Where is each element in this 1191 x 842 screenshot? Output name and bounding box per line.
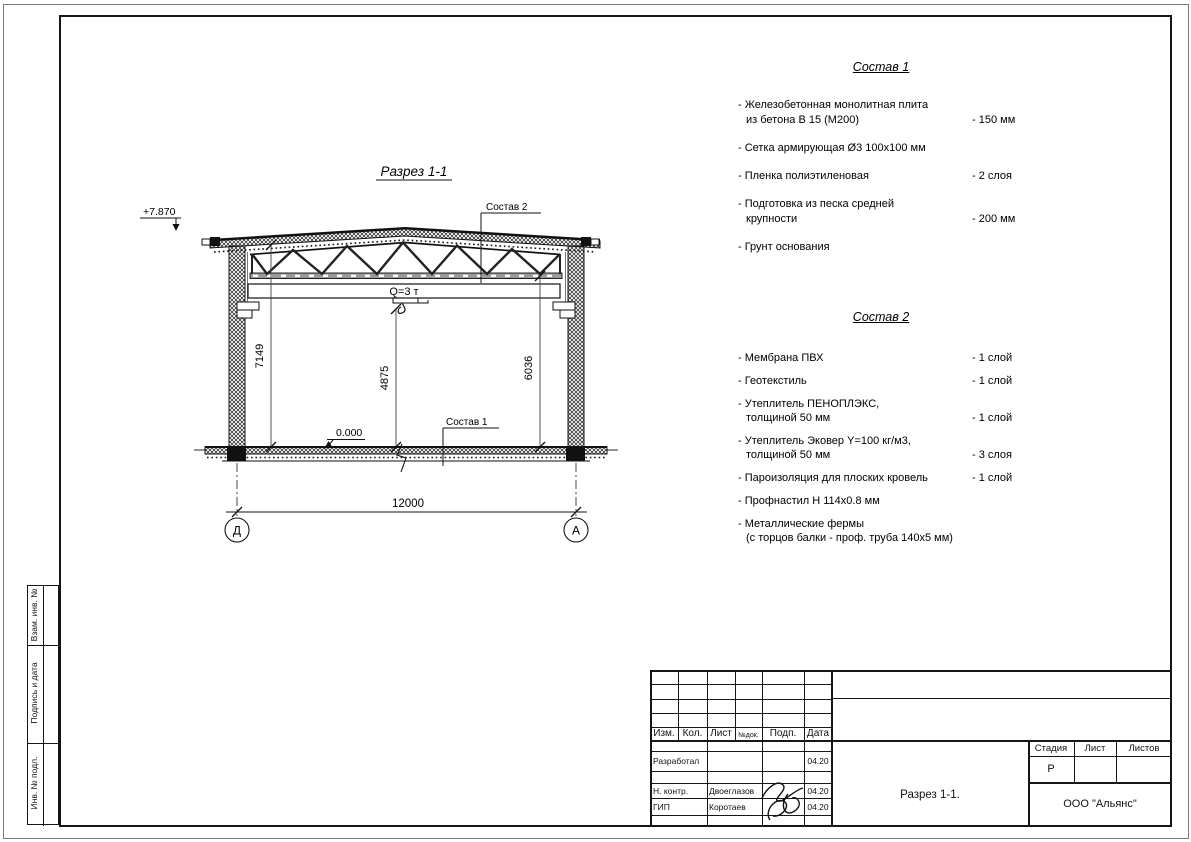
tb-sheet-label: Лист — [1074, 742, 1116, 756]
title-block: Изм. Кол. Лист №док. Подп. Дата Разработ… — [650, 670, 1172, 827]
drawing-sheet: Разрез 1-1 +7.870 — [0, 0, 1191, 842]
item-text: - Утеплитель Эковер Y=100 кг/м3, — [738, 434, 972, 448]
callout-floor-label: Состав 1 — [446, 417, 488, 428]
item-text: - Геотекстиль — [738, 374, 972, 388]
tb-col-podp: Подп. — [762, 727, 804, 741]
dim-center-value: 4875 — [379, 366, 391, 390]
item-text: - Пароизоляция для плоских кровель — [738, 471, 972, 485]
spec2-item: - Мембрана ПВХ - 1 слой — [738, 351, 1172, 365]
tb-company: ООО "Альянс" — [1028, 797, 1172, 811]
elevation-mark-zero: 0.000 — [324, 427, 365, 449]
stamp-label-vzam: Взам. инв. № — [26, 586, 42, 644]
crane-beam: Q=3 т — [248, 284, 560, 313]
dim-span-value: 12000 — [392, 498, 424, 510]
axis-right-label: А — [572, 524, 580, 538]
tb-role-gip: ГИП — [653, 800, 670, 814]
line — [650, 713, 832, 714]
tb-col-izm: Изм. — [650, 727, 678, 741]
spec-sostav-2: Состав 2 - Мембрана ПВХ - 1 слой - Геоте… — [738, 309, 1172, 554]
item-text2: (с торцов балки - проф. труба 140х5 мм) — [738, 531, 972, 545]
item-text: - Железобетонная монолитная плита — [738, 98, 972, 113]
wall-right — [568, 246, 584, 448]
roof — [202, 228, 600, 255]
line — [650, 670, 1172, 672]
item-value: - 1 слой — [972, 471, 1012, 485]
signature-icon — [758, 774, 810, 824]
dimension-4875: 4875 — [379, 304, 401, 452]
spec2-item: - Геотекстиль - 1 слой — [738, 374, 1172, 388]
wall-left — [229, 246, 245, 448]
elevation-top-value: +7.870 — [143, 206, 176, 218]
item-text: - Подготовка из песка средней — [738, 197, 972, 212]
axis-marker-right: А — [564, 518, 588, 542]
item-value: - 3 слоя — [972, 448, 1012, 462]
item-value: - 150 мм — [972, 113, 1015, 128]
elevation-mark-top: +7.870 — [140, 206, 181, 231]
line — [650, 699, 832, 700]
line — [650, 684, 832, 685]
axis-marker-left: Д — [225, 518, 249, 542]
elevation-zero-value: 0.000 — [336, 427, 362, 439]
tb-col-data: Дата — [804, 727, 832, 741]
drawing-title: Разрез 1-1 — [381, 164, 448, 179]
item-text2: из бетона В 15 (М200) — [738, 113, 972, 128]
item-text: - Утеплитель ПЕНОПЛЭКС, — [738, 397, 972, 411]
spec2-item: - Утеплитель Эковер Y=100 кг/м3, толщино… — [738, 434, 1172, 462]
stamp-label-podpis: Подпись и дата — [26, 646, 42, 740]
stamp-label-inv: Инв. № подл. — [26, 744, 42, 822]
tb-name-korotaev: Коротаев — [709, 800, 746, 814]
tb-sheets-label: Листов — [1116, 742, 1172, 756]
line — [1028, 782, 1172, 784]
tb-name-dvoeglazov: Двоеглазов — [709, 784, 754, 798]
tb-stage-value: Р — [1028, 762, 1074, 776]
item-text2: толщиной 50 мм — [738, 448, 972, 462]
tb-stage-label: Стадия — [1028, 742, 1074, 756]
spec1-item: - Сетка армирующая Ø3 100х100 мм — [738, 141, 1172, 156]
item-text: - Пленка полиэтиленовая — [738, 169, 972, 184]
tb-col-kol: Кол. — [678, 727, 707, 741]
spec2-title: Состав 2 — [764, 309, 998, 325]
line — [650, 670, 652, 827]
tb-col-ndok: №док. — [735, 729, 762, 743]
item-value: - 2 слоя — [972, 169, 1012, 184]
tb-col-list: Лист — [707, 727, 735, 741]
item-text2: крупности — [738, 212, 972, 227]
spec2-item: - Пароизоляция для плоских кровель - 1 с… — [738, 471, 1172, 485]
spec1-item: - Грунт основания — [738, 240, 1172, 255]
eave-block-right — [581, 237, 591, 246]
roof-truss — [250, 243, 562, 279]
spec2-item: - Металлические фермы (с торцов балки - … — [738, 517, 1172, 545]
callout-roof-label: Состав 2 — [486, 202, 528, 213]
item-text2: толщиной 50 мм — [738, 411, 972, 425]
item-text: - Грунт основания — [738, 240, 972, 255]
item-text: - Профнастил Н 114х0.8 мм — [738, 494, 972, 508]
item-value: - 1 слой — [972, 351, 1012, 365]
spec-sostav-1: Состав 1 - Железобетонная монолитная пли… — [738, 59, 1172, 268]
dim-left-value: 7149 — [254, 344, 266, 368]
tb-date: 04.20 — [804, 754, 832, 768]
tb-role-razrabotal: Разработал — [653, 754, 699, 768]
item-text: - Мембрана ПВХ — [738, 351, 972, 365]
line — [43, 586, 44, 826]
side-stamp: Взам. инв. № Подпись и дата Инв. № подл. — [27, 585, 59, 825]
tb-role-nkontr: Н. контр. — [653, 784, 688, 798]
line — [650, 771, 832, 772]
line — [650, 825, 1172, 827]
item-text: - Сетка армирующая Ø3 100х100 мм — [738, 141, 972, 156]
item-value: - 1 слой — [972, 411, 1012, 425]
section-drawing: Разрез 1-1 +7.870 — [100, 140, 640, 560]
spec1-title: Состав 1 — [764, 59, 998, 75]
item-value: - 200 мм — [972, 212, 1015, 227]
axis-left-label: Д — [233, 524, 241, 538]
floor-slab — [194, 444, 618, 472]
dimension-12000: 12000 — [226, 463, 587, 517]
crane-capacity-label: Q=3 т — [389, 286, 418, 298]
item-text: - Металлические фермы — [738, 517, 972, 531]
tb-doc-title: Разрез 1-1. — [832, 788, 1028, 802]
line — [832, 698, 1172, 699]
callout-sostav1: Состав 1 — [443, 417, 499, 466]
item-value: - 1 слой — [972, 374, 1012, 388]
spec1-item: - Пленка полиэтиленовая - 2 слоя — [738, 169, 1172, 184]
eave-block-left — [210, 237, 220, 246]
spec1-item: - Железобетонная монолитная плита из бет… — [738, 98, 1172, 128]
dim-right-value: 6036 — [523, 356, 535, 380]
spec2-item: - Профнастил Н 114х0.8 мм — [738, 494, 1172, 508]
spec2-item: - Утеплитель ПЕНОПЛЭКС, толщиной 50 мм -… — [738, 397, 1172, 425]
line — [707, 670, 708, 827]
line — [1028, 756, 1172, 757]
crane-hook-icon — [398, 303, 405, 313]
crane-corbels — [237, 302, 575, 318]
line — [650, 751, 832, 752]
spec1-item: - Подготовка из песка средней крупности … — [738, 197, 1172, 227]
